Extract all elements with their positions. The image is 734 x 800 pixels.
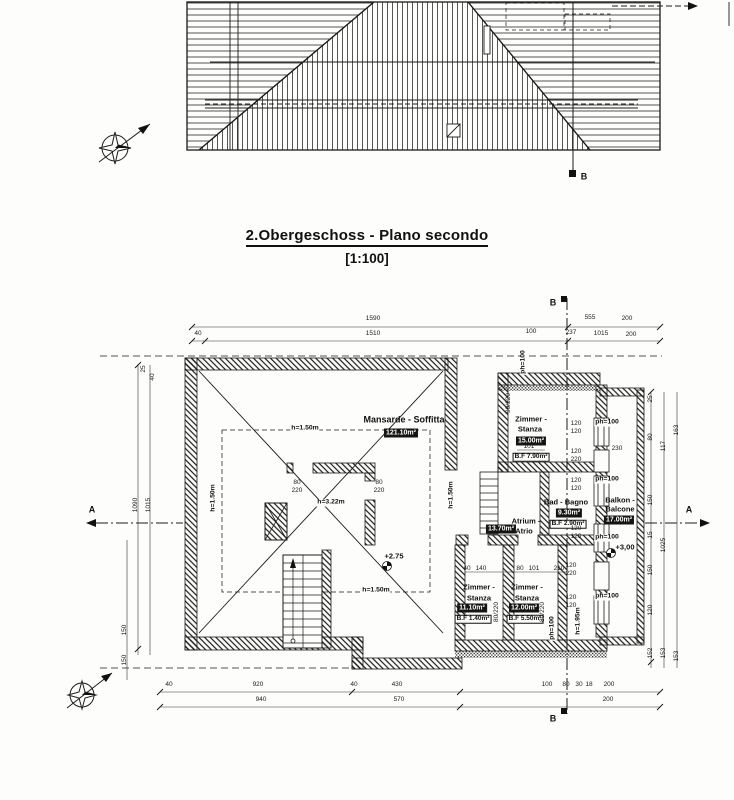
dimension-label: 1015 [594,331,608,338]
dimension-label: 140 [476,566,487,573]
area-mansarde: 121.10m² [384,429,418,438]
page-title: 2.Obergeschoss - Plano secondo [246,227,489,247]
dimension-label: 220 [566,571,577,578]
staircase [283,555,322,648]
section-letter-b-top: B [550,299,557,308]
dimension-label: 230 [612,446,623,453]
room-label-zimmer-s: Zimmer - [511,583,543,591]
room-label-atrium-2: Atrio [515,527,533,535]
dimension-label: 210 [554,566,565,573]
section-letter-b-bottom: B [550,715,557,724]
area-zimmer-sw: 11.10m² [457,604,487,613]
dimension-label: 80 [516,566,523,573]
dimension-label: 200 [622,316,633,323]
dimension-label: 150 [122,655,129,666]
dimension-label: 200 [604,682,615,689]
floor-area-zimmer-top: B.F 7.90m² [513,453,550,462]
drawing-scale: [1:100] [0,251,734,266]
area-bad: 9.30m² [556,509,582,518]
title-block: 2.Obergeschoss - Plano secondo [1:100] [0,227,734,266]
annotation-label: h=3.22m [316,500,345,507]
dimension-label: 80 [375,480,382,487]
roof-plan [187,2,729,177]
dimension-label: 40 [150,373,157,380]
chimney-shaft [265,503,287,540]
annotation-label: h=1.50m [361,588,390,595]
dimension-label: 40 [463,566,470,573]
level-balkon: +3,00 [616,543,635,551]
dimension-label: 220 [292,488,303,495]
area-zimmer-s: 12.00m² [509,604,539,613]
annotation-label: h=1.50m [449,480,456,509]
dimension-label: 40 [350,682,357,689]
section-letter-b-roof: B [581,173,588,182]
annotation-label: ph=100 [594,535,620,542]
dimension-label: 150 [648,565,655,576]
north-arrow-bottom [67,673,112,709]
dimension-label: 1025 [661,538,668,552]
dimension-label: 30 [575,682,582,689]
dimension-label: 18 [585,682,592,689]
section-letter-a-right: A [686,506,693,515]
dimension-label: 120 [571,429,582,436]
dimension-label: 120 [571,526,582,533]
dimension-label: 120 [648,605,655,616]
dimension-label: 40 [194,331,201,338]
dimension-label: 120 [566,595,577,602]
dimension-label: 80 [293,480,300,487]
dimension-label: 101 [529,566,540,573]
annotation-label: ph=100 [594,420,620,427]
plan-linework [0,0,734,800]
dimension-label: 220 [571,457,582,464]
annotation-label: h=1.50m [211,483,218,512]
room-label-zimmer-top: Zimmer - [515,415,547,423]
area-atrium: 13.70m² [486,525,516,534]
dimension-label: 15 [648,531,655,538]
dimension-label: 100 [542,682,553,689]
dimension-label: 80/220 [494,602,501,622]
dimension-label: 25 [141,365,148,372]
annotation-label: h=1.50m [290,426,319,433]
annotation-label: ph=100 [550,615,557,641]
dimension-label: 153 [674,651,681,662]
dimension-label: 25 [648,395,655,402]
dimension-label: 40 [165,682,172,689]
dimension-label: 80 [648,433,655,440]
dimension-label: 430 [392,682,403,689]
floor-area-zimmer-sw: B.F 1.40m² [455,615,492,624]
dimension-label: 120 [571,449,582,456]
dimension-label: 920 [253,682,264,689]
dimension-label: 200 [626,332,637,339]
dimension-label: 570 [394,697,405,704]
dimension-label: 153 [661,648,668,659]
dimension-label: 90/220 [506,393,513,413]
dimension-label: 120 [566,563,577,570]
dimension-label: 220 [374,488,385,495]
dimension-label: 163 [674,425,681,436]
dimension-label: 1590 [366,316,380,323]
room-label-zimmer-top-2: Stanza [518,425,542,433]
dimension-label: 1090 [133,498,140,512]
room-label-zimmer-sw-2: Stanza [467,594,491,602]
annotation-label: ph=100 [594,477,620,484]
annotation-label: ph=100 [521,349,528,375]
dimension-label: 152 [648,648,655,659]
dimension-label: 150 [122,625,129,636]
drawing-sheet: 2.Obergeschoss - Plano secondo [1:100] M… [0,0,734,800]
dimension-label: 80 [562,682,569,689]
dimension-label: 100 [526,329,537,336]
section-letter-a-left: A [89,506,96,515]
dimension-label: 80/220 [540,602,547,622]
level-marker-balkon [607,549,616,558]
level-marker-mansarde [383,562,392,571]
dimension-label: 117 [661,441,668,451]
room-label-balkon: Balkon - [605,496,635,504]
north-arrow-top [99,124,150,164]
dimension-label: 150 [648,495,655,506]
dimension-label: 237 [566,330,577,337]
room-label-zimmer-sw: Zimmer - [463,583,495,591]
dimension-label: 1015 [146,498,153,512]
dimension-label: 1510 [366,331,380,338]
dimension-label: 120 [571,421,582,428]
dimension-label: 120 [571,534,582,541]
dimension-label: 940 [256,697,267,704]
level-mansarde: +2.75 [385,552,404,560]
room-label-bad: Bad - Bagno [544,498,588,506]
dimension-label: 555 [585,315,596,322]
dimension-label: 120 [571,486,582,493]
dimension-label: 120 [571,478,582,485]
dimension-label: 101 [524,444,535,451]
dimension-label: 200 [603,697,614,704]
room-label-zimmer-s-2: Stanza [515,594,539,602]
room-label-mansarde: Mansarde - Soffitta [363,416,444,425]
annotation-label: ph=100 [594,594,620,601]
annotation-label: h=1.95m [576,606,583,635]
area-balkon: 17.00m² [604,516,634,525]
room-label-balkon-2: Balcone [605,505,634,513]
